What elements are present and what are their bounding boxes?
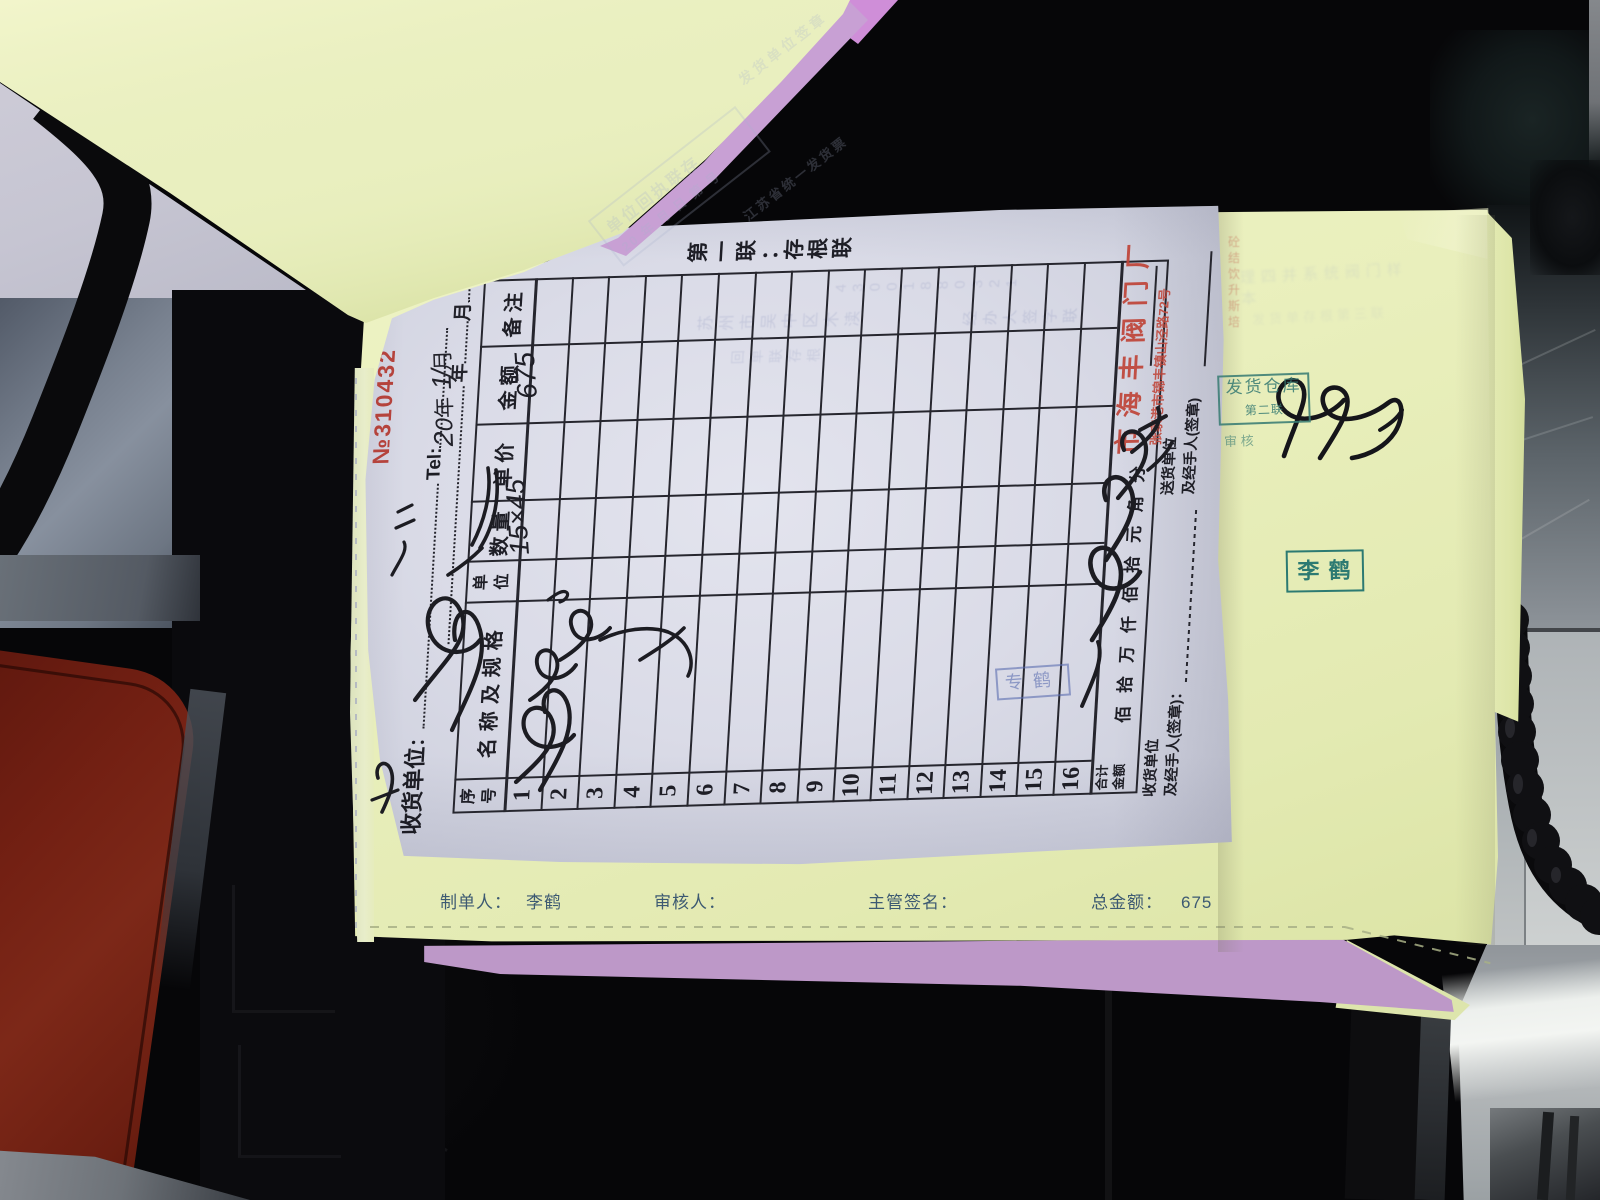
svg-text:江苏省统一发货票: 江苏省统一发货票 bbox=[741, 133, 851, 224]
